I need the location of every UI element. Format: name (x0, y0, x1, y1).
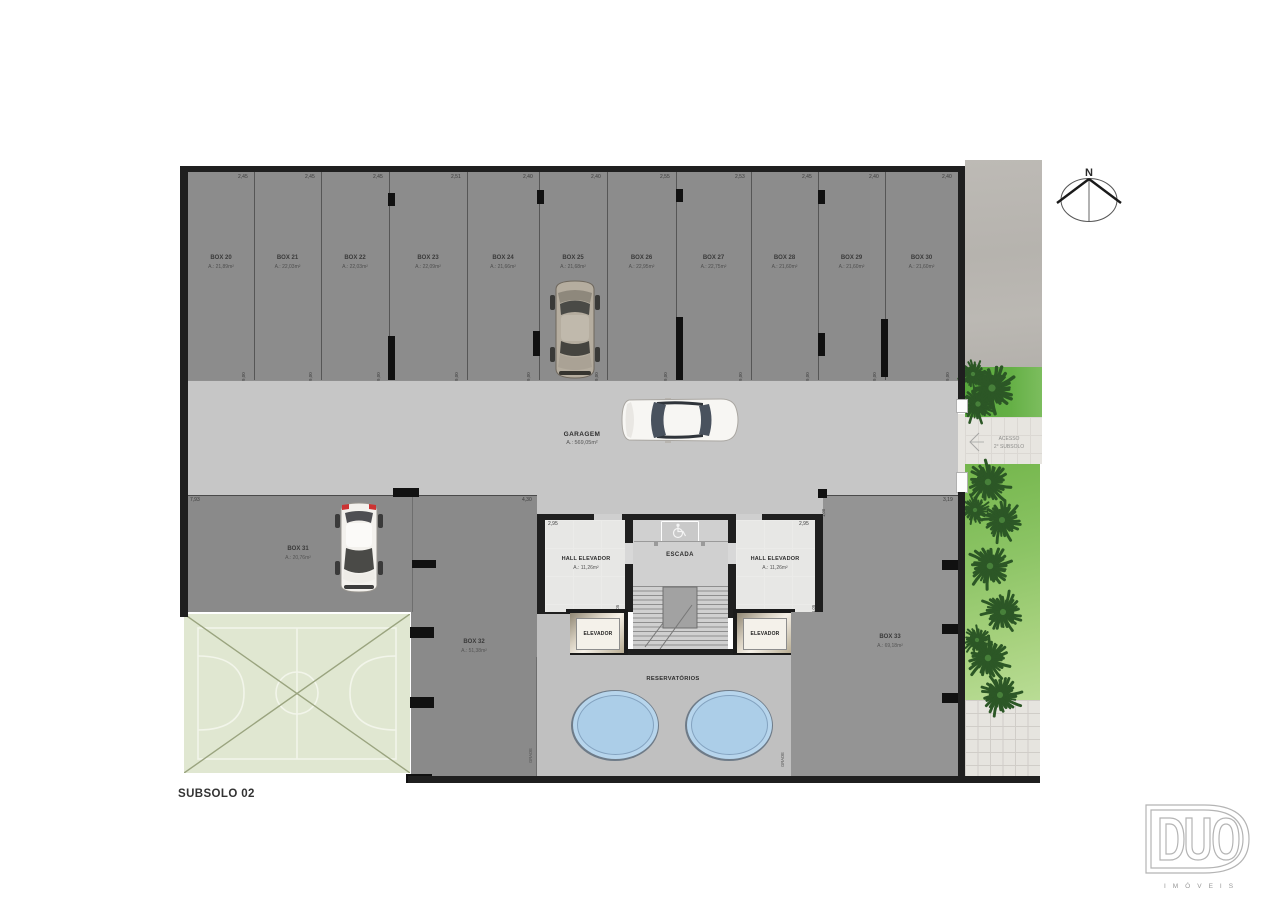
svg-text:N: N (1085, 167, 1093, 179)
svg-text:IMÓVEIS: IMÓVEIS (1164, 881, 1240, 890)
